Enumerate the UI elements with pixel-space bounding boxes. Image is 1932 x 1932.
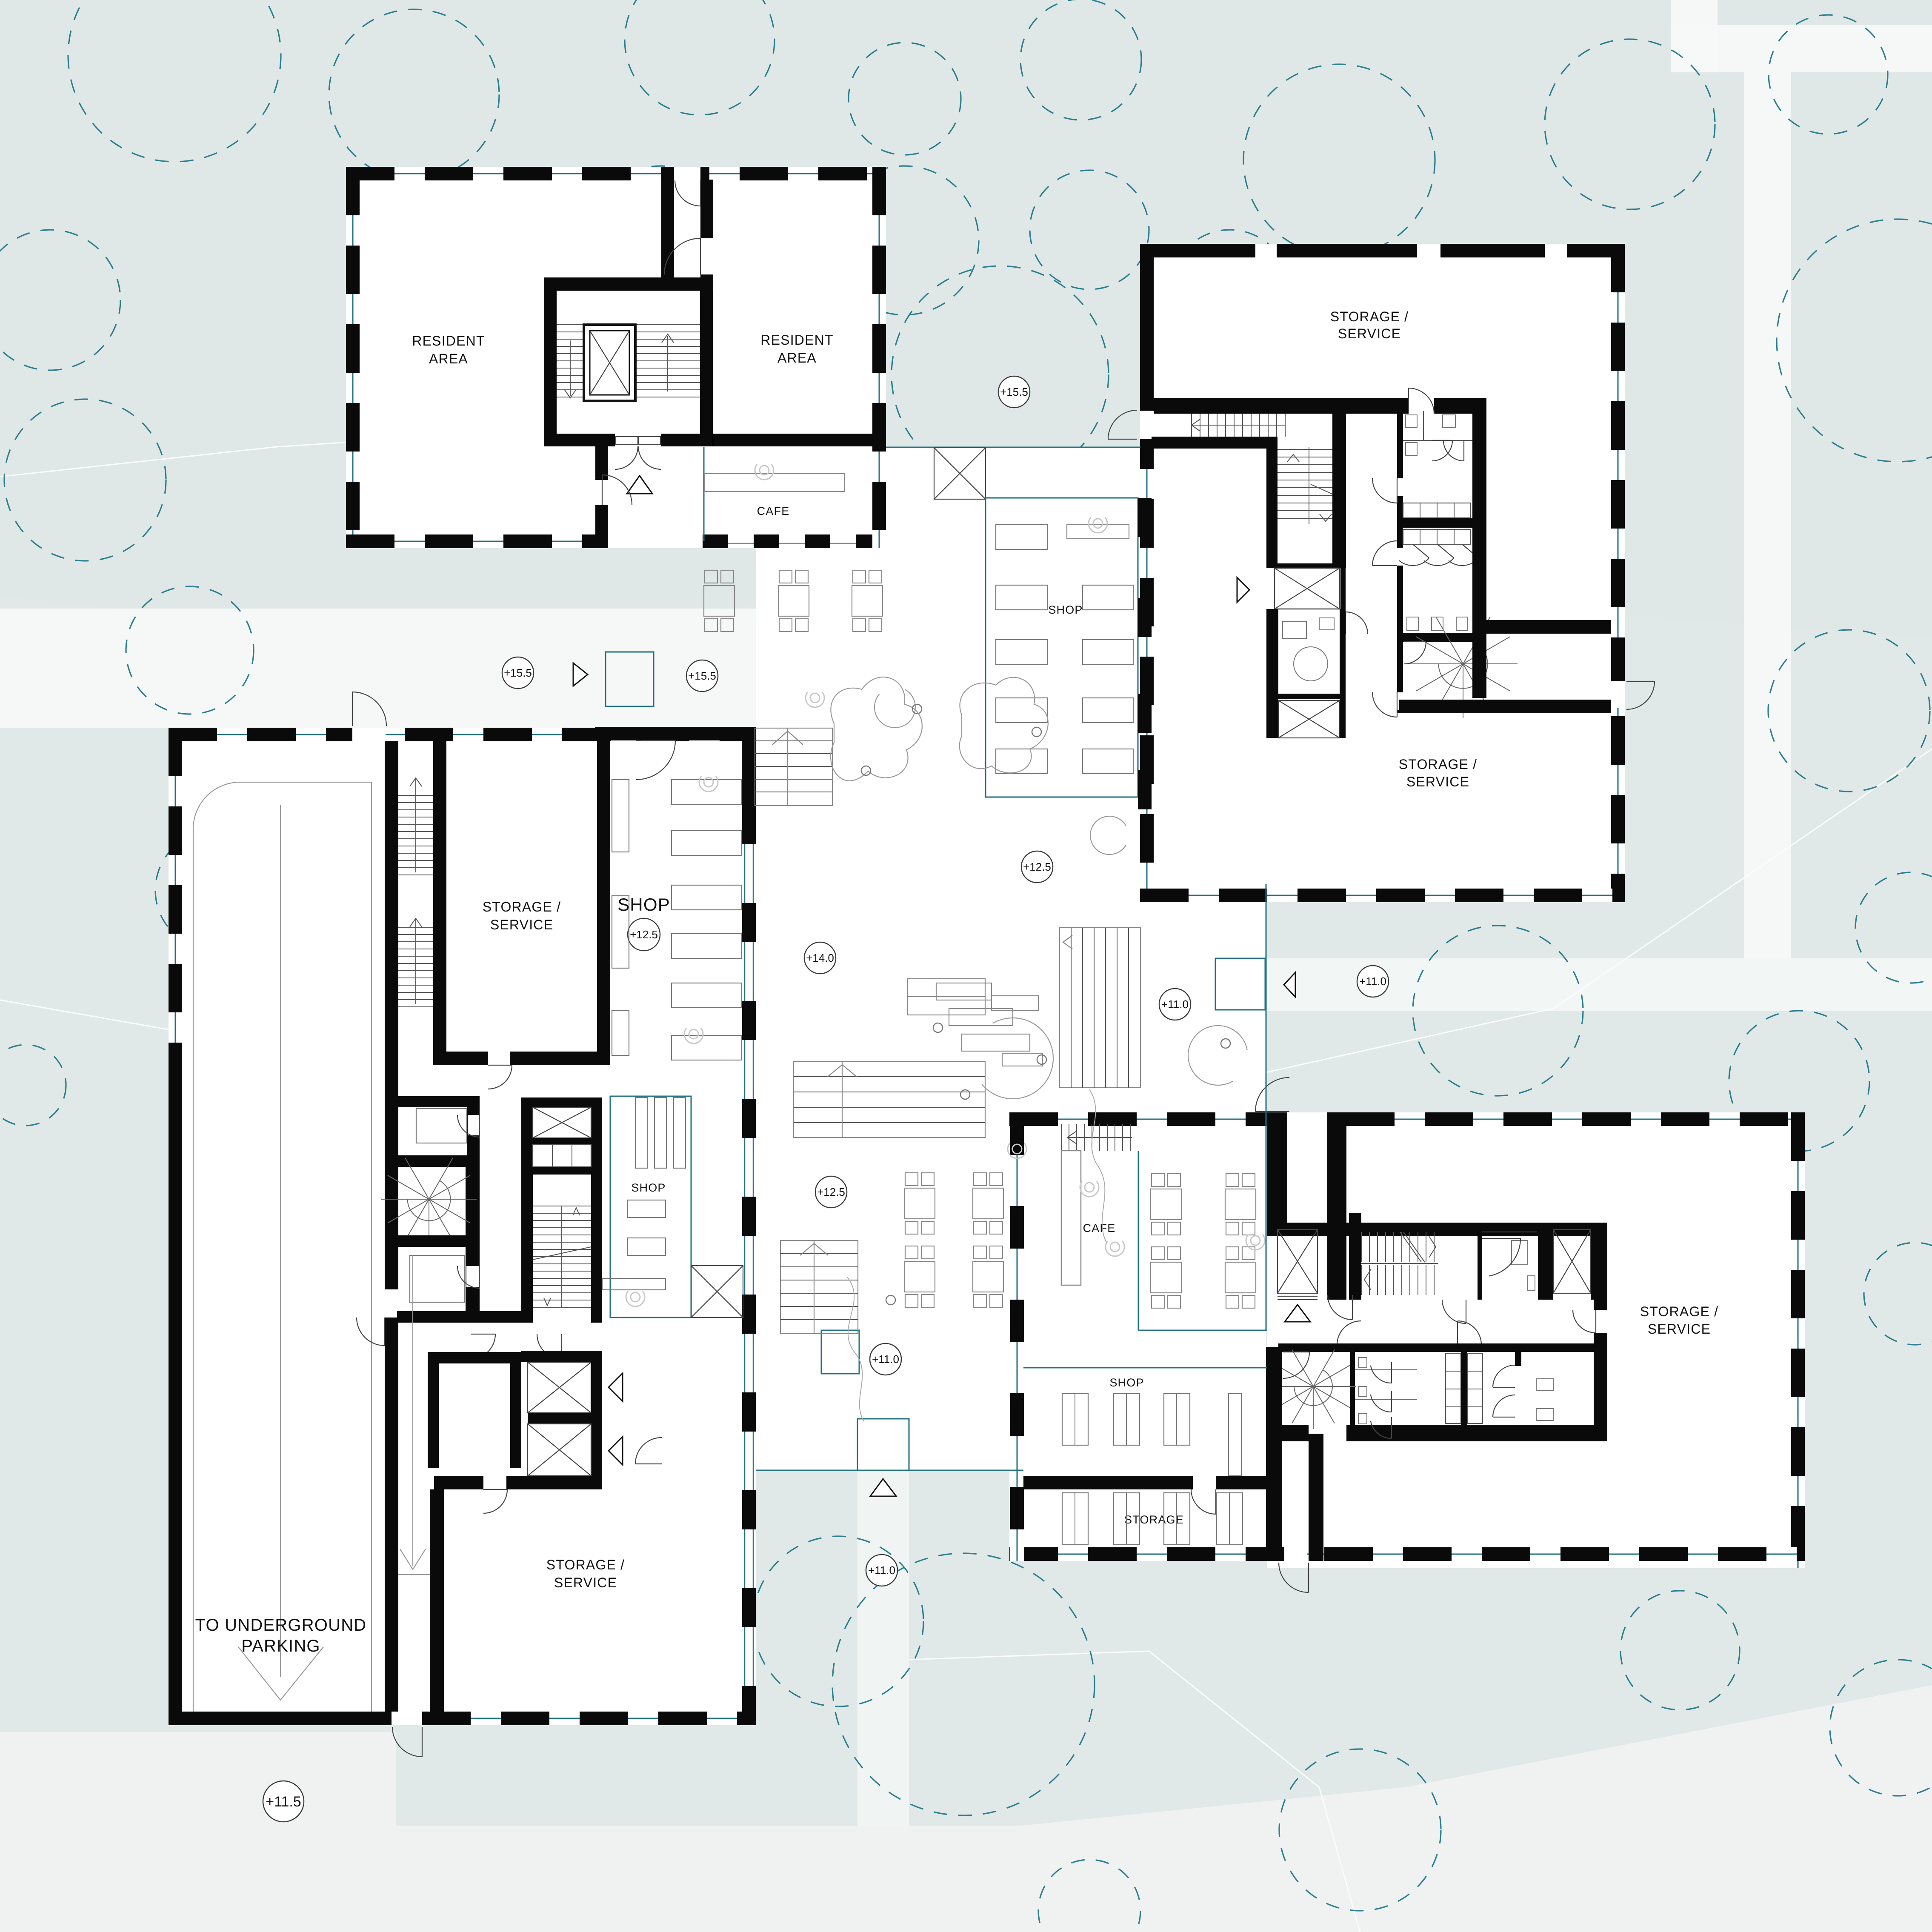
svg-text:STORAGE /: STORAGE / (1640, 1304, 1718, 1319)
svg-text:STORAGE /: STORAGE / (1330, 309, 1409, 324)
svg-text:RESIDENT: RESIDENT (412, 333, 485, 349)
svg-text:SHOP: SHOP (1048, 603, 1083, 616)
svg-text:+11.0: +11.0 (868, 1564, 895, 1577)
svg-text:STORAGE /: STORAGE / (483, 899, 561, 915)
svg-text:+11.5: +11.5 (266, 1794, 301, 1810)
svg-text:CAFE: CAFE (757, 505, 790, 517)
svg-text:SERVICE: SERVICE (554, 1575, 617, 1590)
svg-text:SERVICE: SERVICE (1648, 1321, 1711, 1337)
svg-text:PARKING: PARKING (241, 1637, 320, 1655)
svg-text:SHOP: SHOP (631, 1181, 666, 1194)
svg-text:+11.0: +11.0 (872, 1353, 899, 1366)
svg-text:+15.5: +15.5 (1000, 386, 1028, 398)
svg-text:STORAGE /: STORAGE / (546, 1557, 625, 1572)
svg-text:AREA: AREA (777, 350, 817, 366)
svg-text:+12.5: +12.5 (817, 1186, 845, 1198)
svg-text:+11.0: +11.0 (1359, 975, 1386, 988)
svg-text:+15.5: +15.5 (504, 666, 532, 679)
svg-text:STORAGE /: STORAGE / (1399, 757, 1477, 772)
svg-text:SHOP: SHOP (617, 895, 670, 915)
svg-text:SHOP: SHOP (1109, 1376, 1144, 1389)
svg-text:+14.0: +14.0 (806, 952, 834, 964)
svg-text:CAFE: CAFE (1083, 1222, 1116, 1235)
svg-text:RESIDENT: RESIDENT (760, 332, 833, 348)
svg-text:+12.5: +12.5 (1023, 860, 1051, 873)
svg-text:TO UNDERGROUND: TO UNDERGROUND (195, 1616, 367, 1635)
svg-text:+15.5: +15.5 (688, 669, 716, 682)
svg-text:SERVICE: SERVICE (490, 917, 553, 932)
svg-text:AREA: AREA (429, 351, 468, 366)
svg-text:SERVICE: SERVICE (1406, 774, 1469, 789)
svg-text:SERVICE: SERVICE (1338, 326, 1401, 341)
svg-text:+12.5: +12.5 (630, 928, 658, 941)
svg-text:STORAGE: STORAGE (1124, 1513, 1184, 1526)
svg-text:+11.0: +11.0 (1161, 998, 1189, 1011)
